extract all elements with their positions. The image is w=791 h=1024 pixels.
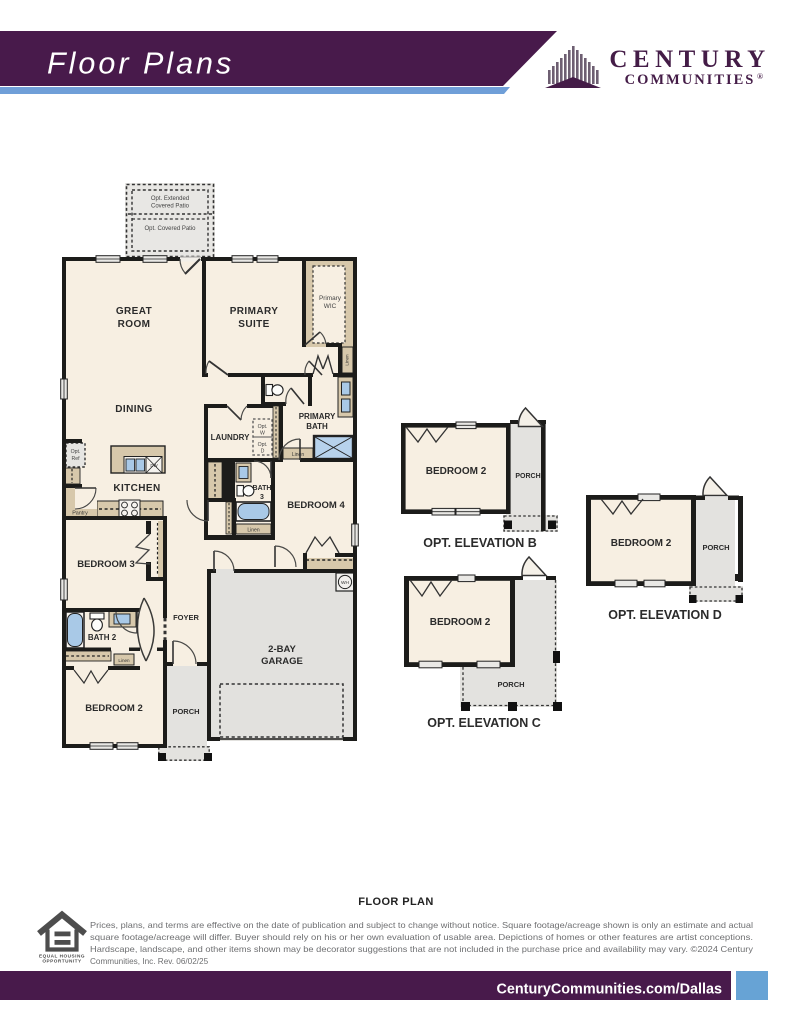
svg-text:BATH: BATH (253, 485, 272, 492)
svg-text:SUITE: SUITE (238, 319, 269, 330)
svg-text:CenturyCommunities.com/Dallas: CenturyCommunities.com/Dallas (496, 982, 722, 998)
svg-text:GREAT: GREAT (116, 306, 152, 317)
svg-text:PORCH: PORCH (702, 543, 729, 552)
svg-text:Opt.: Opt. (71, 449, 81, 455)
svg-text:FLOOR PLAN: FLOOR PLAN (358, 896, 434, 908)
svg-text:FOYER: FOYER (173, 613, 199, 622)
svg-text:PORCH: PORCH (497, 680, 524, 689)
svg-text:Communities, Inc. Rev. 06/02/2: Communities, Inc. Rev. 06/02/25 (90, 957, 209, 966)
svg-text:BATH 2: BATH 2 (88, 633, 117, 642)
svg-text:®: ® (757, 72, 763, 81)
svg-text:WIC: WIC (324, 303, 337, 310)
svg-text:CENTURY: CENTURY (609, 46, 770, 73)
svg-text:BEDROOM 2: BEDROOM 2 (85, 703, 143, 714)
svg-text:Prices, plans, and terms are e: Prices, plans, and terms are effective o… (90, 921, 753, 930)
svg-text:PRIMARY: PRIMARY (299, 412, 336, 421)
svg-text:3: 3 (260, 494, 264, 501)
svg-text:BEDROOM 3: BEDROOM 3 (77, 559, 135, 570)
svg-text:D: D (261, 449, 265, 455)
svg-text:DW: DW (150, 463, 158, 468)
svg-text:Ref: Ref (71, 456, 80, 462)
svg-text:Opt. Covered Patio: Opt. Covered Patio (144, 226, 196, 232)
svg-text:Linen: Linen (345, 354, 350, 366)
svg-text:OPPORTUNITY: OPPORTUNITY (42, 959, 82, 964)
svg-text:BEDROOM 2: BEDROOM 2 (426, 466, 487, 477)
svg-text:COMMUNITIES: COMMUNITIES (625, 72, 756, 88)
svg-text:square footage/acreage will di: square footage/acreage will differ. Buye… (90, 933, 753, 942)
svg-text:DINING: DINING (115, 404, 152, 415)
svg-text:Pantry: Pantry (72, 511, 88, 517)
svg-text:GARAGE: GARAGE (261, 656, 303, 667)
svg-text:PRIMARY: PRIMARY (230, 306, 279, 317)
svg-text:OPT. ELEVATION D: OPT. ELEVATION D (608, 608, 721, 622)
svg-text:PORCH: PORCH (515, 473, 540, 480)
svg-text:Hardscape, landscape, and othe: Hardscape, landscape, and other items sh… (90, 945, 754, 954)
svg-text:Linen: Linen (292, 452, 304, 458)
svg-text:BEDROOM 2: BEDROOM 2 (430, 617, 491, 628)
svg-text:BEDROOM 2: BEDROOM 2 (611, 538, 672, 549)
svg-text:2-BAY: 2-BAY (268, 644, 296, 655)
svg-text:LAUNDRY: LAUNDRY (211, 433, 250, 442)
svg-text:Covered Patio: Covered Patio (151, 204, 190, 210)
svg-text:W: W (260, 431, 265, 437)
svg-text:Opt.: Opt. (258, 442, 268, 448)
svg-text:Linen: Linen (247, 528, 259, 534)
svg-text:Primary: Primary (319, 295, 342, 302)
svg-text:Opt. Extended: Opt. Extended (151, 196, 189, 202)
svg-text:Linen: Linen (118, 658, 130, 663)
svg-text:PORCH: PORCH (172, 707, 199, 716)
svg-text:ROOM: ROOM (118, 319, 151, 330)
svg-text:Opt.: Opt. (258, 424, 268, 430)
svg-text:WH: WH (341, 580, 350, 586)
svg-text:Floor Plans: Floor Plans (47, 47, 234, 81)
svg-text:BATH: BATH (306, 422, 328, 431)
svg-text:OPT. ELEVATION B: OPT. ELEVATION B (423, 536, 536, 550)
svg-text:KITCHEN: KITCHEN (113, 483, 160, 494)
svg-text:OPT. ELEVATION C: OPT. ELEVATION C (427, 716, 540, 730)
svg-text:BEDROOM 4: BEDROOM 4 (287, 500, 345, 511)
